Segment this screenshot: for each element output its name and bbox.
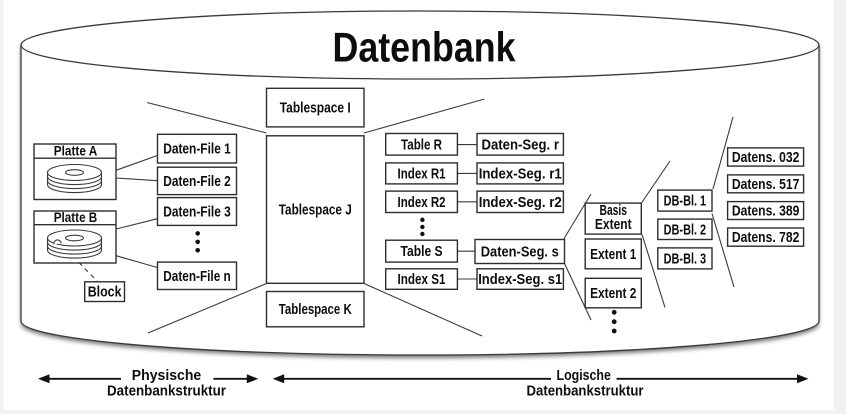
svg-text:Datenbank: Datenbank	[333, 24, 517, 71]
svg-text:Index-Seg. s1: Index-Seg. s1	[478, 271, 562, 288]
svg-text:Daten-File 1: Daten-File 1	[163, 141, 231, 158]
svg-text:Tablespace I: Tablespace I	[280, 100, 351, 117]
svg-text:Table R: Table R	[401, 136, 442, 153]
svg-text:Extent 2: Extent 2	[590, 285, 636, 302]
svg-text:Index R1: Index R1	[398, 165, 446, 182]
svg-text:Index S1: Index S1	[398, 271, 446, 288]
svg-text:Datenbankstruktur: Datenbankstruktur	[527, 384, 644, 400]
svg-text:Logische: Logische	[557, 368, 611, 384]
svg-text:DB-Bl. 2: DB-Bl. 2	[664, 221, 707, 238]
svg-text:Datens. 517: Datens. 517	[732, 176, 800, 193]
svg-text:Index-Seg. r2: Index-Seg. r2	[479, 194, 562, 211]
svg-text:Block: Block	[88, 284, 122, 301]
svg-text:Platte B: Platte B	[54, 210, 98, 225]
svg-text:Datens. 782: Datens. 782	[732, 229, 800, 246]
svg-text:Tablespace J: Tablespace J	[279, 202, 352, 219]
svg-text:Extent 1: Extent 1	[590, 246, 636, 263]
svg-text:DB-Bl. 3: DB-Bl. 3	[664, 250, 707, 267]
svg-text:Datens. 389: Datens. 389	[732, 203, 800, 220]
svg-text:Extent: Extent	[595, 216, 632, 233]
svg-text:Daten-File n: Daten-File n	[163, 268, 231, 285]
svg-text:Daten-File 2: Daten-File 2	[163, 173, 231, 190]
svg-text:Table S: Table S	[401, 243, 443, 260]
svg-text:DB-Bl. 1: DB-Bl. 1	[664, 193, 707, 210]
svg-text:Platte A: Platte A	[54, 144, 98, 159]
svg-text:Index R2: Index R2	[398, 194, 446, 211]
svg-text:Datenbankstruktur: Datenbankstruktur	[107, 384, 226, 400]
svg-text:Datens. 032: Datens. 032	[732, 149, 800, 166]
svg-text:Physische: Physische	[132, 368, 202, 384]
svg-text:Tablespace K: Tablespace K	[279, 301, 352, 318]
svg-text:Daten-Seg. r: Daten-Seg. r	[481, 136, 559, 153]
svg-text:Index-Seg. r1: Index-Seg. r1	[479, 165, 562, 182]
svg-text:Daten-File 3: Daten-File 3	[163, 204, 231, 221]
svg-text:Daten-Seg. s: Daten-Seg. s	[481, 244, 559, 261]
